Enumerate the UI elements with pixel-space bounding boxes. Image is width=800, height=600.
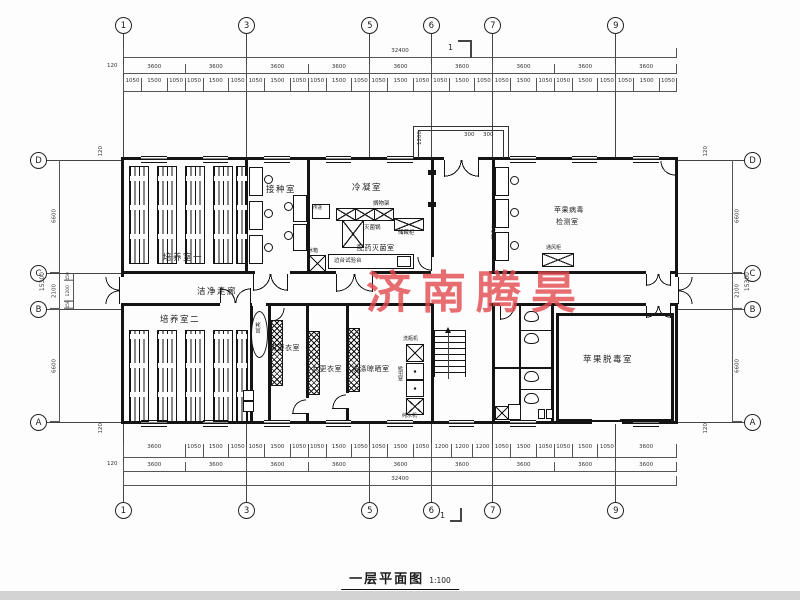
detox-room-wall <box>556 313 674 422</box>
dim-value: 3600 <box>431 64 493 73</box>
dim-value: 1500 <box>141 78 167 91</box>
dim-value: 3600 <box>246 64 308 73</box>
axis-bubble-row-left: B <box>30 301 47 318</box>
culture-rack <box>185 166 205 264</box>
window <box>510 420 536 427</box>
dim-value: 6600 <box>733 160 742 273</box>
dim-value: 3600 <box>185 64 247 73</box>
dimension-row: 32400 <box>123 476 677 486</box>
dim-value: 3600 <box>431 462 493 471</box>
dim-value: 1050 <box>492 444 510 457</box>
dim-value: 3600 <box>308 462 370 471</box>
toilet-fixture <box>524 333 539 344</box>
dim-value: 1050 <box>659 78 677 91</box>
bottom-gray-strip <box>0 591 800 600</box>
equip-label-shelf: 搁物架 <box>373 201 390 207</box>
room-label-women-changing: 女更衣室 <box>312 366 342 374</box>
axis-bubble-col-top: 1 <box>115 17 132 34</box>
dim-value: 1050 <box>615 78 633 91</box>
equipment-dotbox <box>406 380 424 397</box>
door-arc <box>444 160 462 177</box>
equipment-xbox <box>309 255 326 272</box>
dim-value: 1050 <box>369 444 387 457</box>
dim-value: 1200 <box>64 281 73 302</box>
dim-value: 1050 <box>474 78 492 91</box>
culture-rack <box>185 330 205 422</box>
equipment-xbox <box>542 253 574 267</box>
dim-value: 1500 <box>510 444 536 457</box>
stool <box>264 209 273 218</box>
section-mark-top: 1 <box>448 44 453 53</box>
equipment-box <box>538 409 545 419</box>
dim-value: 32400 <box>123 48 677 57</box>
drawing-title-block: 一层平面图 1:100 <box>341 568 459 593</box>
dim-value: 1500 <box>449 78 475 91</box>
dim-value: 1050 <box>185 444 203 457</box>
door-arc <box>660 161 676 176</box>
dim-value: 1500 <box>510 78 536 91</box>
dim-value: 1500 <box>203 444 229 457</box>
dim-value: 1050 <box>167 78 185 91</box>
dim-value: 1050 <box>228 78 246 91</box>
dim-value: 3600 <box>554 462 616 471</box>
culture-rack <box>129 330 149 422</box>
locker-cabinet <box>348 328 360 392</box>
door-arc <box>105 290 120 304</box>
stairs-arrow-line <box>448 332 449 379</box>
dim-value: 1200 <box>451 444 472 457</box>
dim-value: 1050 <box>536 78 554 91</box>
axis-bubble-row-left: A <box>30 414 47 431</box>
dim-value: 1500 <box>203 78 229 91</box>
culture-rack <box>236 166 248 264</box>
dim-value: 3600 <box>369 64 431 73</box>
room-label-detection-2: 检测室 <box>556 219 579 227</box>
dim-value: 3600 <box>123 444 185 457</box>
room-label-condensation: 冷凝室 <box>352 184 382 193</box>
axis-bubble-row-right: A <box>744 414 761 431</box>
dim-value: 6600 <box>733 309 742 422</box>
dim-value: 1050 <box>536 444 554 457</box>
dim-value: 1200 <box>472 444 493 457</box>
dim-value: 1050 <box>308 444 326 457</box>
door-arc <box>461 160 479 177</box>
axis-grid-line <box>46 422 121 423</box>
equipment-box <box>243 401 254 412</box>
dim-value: 3600 <box>492 462 554 471</box>
door-arc <box>417 257 432 271</box>
window <box>510 156 536 163</box>
window <box>203 156 229 163</box>
stairs-arrow-head <box>445 327 451 333</box>
dimension-col: 660021006600 <box>732 160 742 422</box>
equipment-xbox <box>374 208 394 221</box>
dim-value: 1050 <box>246 444 264 457</box>
locker-cabinet <box>308 331 320 395</box>
locker-cabinet <box>271 320 283 386</box>
equipment-dotbox <box>406 363 424 380</box>
door-arc <box>292 399 306 414</box>
equip-label-pass-window: 传递 <box>313 207 322 212</box>
wall-segment <box>124 303 220 306</box>
dim-value: 3600 <box>615 462 677 471</box>
axis-bubble-col-top: 6 <box>423 17 440 34</box>
wall-segment <box>675 303 678 424</box>
axis-bubble-col-bottom: 3 <box>238 502 255 519</box>
wall-segment <box>306 413 309 421</box>
stool <box>284 202 293 211</box>
room-label-prep-sterilization: 配药灭菌室 <box>357 245 395 253</box>
toilet-fixture <box>524 393 539 404</box>
axis-bubble-col-top: 5 <box>361 17 378 34</box>
detox-door-gap <box>592 414 620 420</box>
room-label-cultivation-2: 培养室二 <box>160 316 200 325</box>
wall-segment <box>492 306 495 421</box>
door-arc <box>253 274 271 291</box>
axis-bubble-col-top: 7 <box>484 17 501 34</box>
dim-value: 1500 <box>264 444 290 457</box>
dim-value: 1050 <box>431 78 449 91</box>
equipment-box <box>249 235 263 264</box>
dim-value: 3600 <box>185 462 247 471</box>
dim-edge-top-row: 120 <box>107 63 118 69</box>
dim-value: 3600 <box>308 64 370 73</box>
dim-value: 3600 <box>554 64 616 73</box>
dim-value: 3600 <box>369 462 431 471</box>
dim-value: 1500 <box>572 444 598 457</box>
stairs <box>434 330 466 377</box>
equip-label-clean-bench: 超净台 <box>492 224 498 239</box>
door-arc <box>332 394 346 409</box>
window <box>264 156 290 163</box>
equip-label-sterilizer: 灭菌锅 <box>364 225 381 231</box>
dim-value: 3600 <box>246 462 308 471</box>
equipment-box <box>508 404 521 420</box>
stool <box>510 241 519 250</box>
dim-value: 1050 <box>308 78 326 91</box>
dim-value: 3600 <box>615 64 677 73</box>
toilet-fixture <box>524 371 539 382</box>
dim-value: 1050 <box>554 78 572 91</box>
wall-segment <box>266 303 434 306</box>
equip-label-side-bench: 边台试验台 <box>334 258 362 264</box>
floor-plan-sheet: 113355667799DDCCBBAA32400360036003600360… <box>0 0 800 600</box>
dim-porch-a: 300 <box>464 132 475 138</box>
door-arc <box>235 288 251 303</box>
stool <box>284 231 293 240</box>
window <box>264 420 290 427</box>
section-mark-line <box>470 40 472 58</box>
dim-edge-bottom-left: 120 <box>98 423 104 434</box>
culture-rack <box>157 330 177 422</box>
dim-value: 1500 <box>326 444 352 457</box>
equipment-xbox <box>406 344 424 362</box>
dim-value: 32400 <box>123 476 677 485</box>
axis-bubble-col-bottom: 1 <box>115 502 132 519</box>
window <box>141 156 167 163</box>
room-label-cultivation-1: 培养室一 <box>163 254 203 263</box>
wall-segment <box>428 170 436 175</box>
window <box>633 156 659 163</box>
wall-segment <box>521 389 551 390</box>
wall-segment <box>495 367 551 369</box>
dim-value: 1500 <box>264 78 290 91</box>
drawing-title: 一层平面图 <box>349 568 424 587</box>
wall-segment <box>428 202 436 207</box>
stool <box>264 243 273 252</box>
dim-value: 1050 <box>351 444 369 457</box>
dim-value: 1500 <box>387 444 413 457</box>
room-label-inoculation: 接种室 <box>266 186 296 195</box>
dim-value: 1050 <box>246 78 264 91</box>
door-arc <box>500 306 515 320</box>
dimension-row: 32400 <box>123 48 677 58</box>
axis-bubble-col-top: 9 <box>607 17 624 34</box>
dimension-col: 4501200450 <box>64 273 74 309</box>
window <box>326 420 352 427</box>
wall-segment <box>372 271 431 274</box>
wall-segment <box>521 330 551 331</box>
equip-label-fume-hood: 通风柜 <box>546 246 561 252</box>
equip-label-bottle-washer: 洗瓶机 <box>403 337 418 343</box>
equipment-box <box>249 167 263 196</box>
wall-segment <box>124 271 255 274</box>
wall-segment <box>121 303 124 424</box>
section-mark-line <box>450 520 462 522</box>
dim-value: 1050 <box>228 444 246 457</box>
room-label-detox: 苹果脱毒室 <box>583 356 633 365</box>
equipment-box <box>293 195 307 222</box>
wall-segment <box>514 303 646 306</box>
equipment-box <box>495 167 509 196</box>
window <box>572 156 598 163</box>
room-label-detection-1: 苹果病毒 <box>554 207 584 215</box>
wall-segment <box>489 271 646 274</box>
dim-value: 1050 <box>369 78 387 91</box>
door-arc <box>658 306 671 318</box>
equipment-box <box>546 409 553 419</box>
wall-segment <box>121 157 124 277</box>
plan-canvas: 113355667799DDCCBBAA32400360036003600360… <box>0 0 800 600</box>
wall-segment <box>551 306 554 421</box>
equipment-box <box>293 224 307 251</box>
dim-value: 1050 <box>185 78 203 91</box>
room-label-corridor: 洁净走廊 <box>197 288 237 297</box>
axis-bubble-col-bottom: 5 <box>361 502 378 519</box>
dim-value: 3600 <box>492 64 554 73</box>
door-arc <box>270 274 288 291</box>
door-arc <box>354 274 373 292</box>
dimension-col: 660021006600 <box>50 160 60 422</box>
dim-edge-bottom-right: 120 <box>703 423 709 434</box>
dimension-row: 3600105015001050105015001050105015001050… <box>123 444 677 458</box>
dimension-row: 360036003600360036003600360036003600 <box>123 64 677 74</box>
door-arc <box>270 308 285 322</box>
culture-rack <box>157 166 177 264</box>
door-arc <box>105 277 120 291</box>
dim-value: 2100 <box>50 273 59 309</box>
axis-bubble-col-bottom: 6 <box>423 502 440 519</box>
dim-edge-top-right: 120 <box>703 146 709 157</box>
toilet-fixture <box>524 311 539 322</box>
dim-value: 6600 <box>50 309 59 422</box>
axis-bubble-row-left: D <box>30 152 47 169</box>
window <box>449 420 475 427</box>
dimension-row: 1050150010501050150010501050150010501050… <box>123 78 677 92</box>
window <box>387 420 413 427</box>
dim-value: 1050 <box>413 78 431 91</box>
axis-bubble-row-right: D <box>744 152 761 169</box>
axis-bubble-col-bottom: 7 <box>484 502 501 519</box>
equipment-box <box>397 256 411 267</box>
dim-overall-height-right: 15300 <box>745 272 752 291</box>
dim-value: 1500 <box>572 78 598 91</box>
drawing-scale: 1:100 <box>429 576 451 585</box>
stool <box>510 176 519 185</box>
wall-segment <box>519 306 521 367</box>
dim-value: 1050 <box>351 78 369 91</box>
dim-porch-depth: 1200 <box>417 131 423 145</box>
room-label-laundry: 洗涤晾晒室 <box>352 366 390 374</box>
dim-value: 1050 <box>554 444 572 457</box>
dim-value: 1050 <box>290 78 308 91</box>
dim-value: 1050 <box>597 444 615 457</box>
dim-value: 1050 <box>290 444 308 457</box>
stool <box>510 208 519 217</box>
dim-value: 1050 <box>492 78 510 91</box>
dim-edge-bottom-row: 120 <box>107 461 118 467</box>
culture-rack <box>213 330 233 422</box>
dim-value: 1500 <box>326 78 352 91</box>
axis-grid-line <box>678 422 744 423</box>
dim-porch-b: 300 <box>483 132 494 138</box>
dim-value: 450 <box>64 273 73 281</box>
dim-overall-height-left: 15300 <box>40 272 47 291</box>
equip-label-autoclave: 高压锅 <box>399 366 405 381</box>
door-arc <box>658 274 671 286</box>
section-mark-bottom: 1 <box>440 512 445 521</box>
room-label-men-changing: 男更衣室 <box>270 345 300 353</box>
axis-bubble-col-top: 3 <box>238 17 255 34</box>
equip-label-fridge: 冰箱 <box>308 249 318 255</box>
dim-edge-top-left: 120 <box>98 146 104 157</box>
dim-value: 3600 <box>123 64 185 73</box>
dim-value: 6600 <box>50 160 59 273</box>
dim-value: 2100 <box>733 273 742 309</box>
equipment-xbox <box>495 406 509 420</box>
dimension-row: 360036003600360036003600360036003600 <box>123 462 677 472</box>
equipment-box <box>249 201 263 230</box>
dim-value: 1500 <box>387 78 413 91</box>
room-label-air-shower: 风淋 <box>256 322 262 333</box>
window <box>387 156 413 163</box>
equip-label-cabinet: 储藏柜 <box>398 230 415 236</box>
axis-bubble-col-bottom: 9 <box>607 502 624 519</box>
dim-value: 3600 <box>615 444 677 457</box>
stool <box>264 175 273 184</box>
dim-value: 1050 <box>413 444 431 457</box>
dim-value: 3600 <box>123 462 185 471</box>
culture-rack <box>129 166 149 264</box>
door-arc <box>336 274 355 292</box>
dim-value: 450 <box>64 301 73 309</box>
air-shower-shape <box>251 311 268 358</box>
door-arc <box>678 290 693 304</box>
dim-value: 1500 <box>633 78 659 91</box>
axis-bubble-row-right: B <box>744 301 761 318</box>
dim-value: 1200 <box>431 444 452 457</box>
culture-rack <box>213 166 233 264</box>
equipment-box <box>243 390 254 401</box>
window <box>326 156 352 163</box>
equip-label-water-purifier: 纯水机 <box>402 414 417 420</box>
dim-value: 1050 <box>123 78 141 91</box>
door-arc <box>678 277 693 291</box>
dim-value: 1050 <box>597 78 615 91</box>
